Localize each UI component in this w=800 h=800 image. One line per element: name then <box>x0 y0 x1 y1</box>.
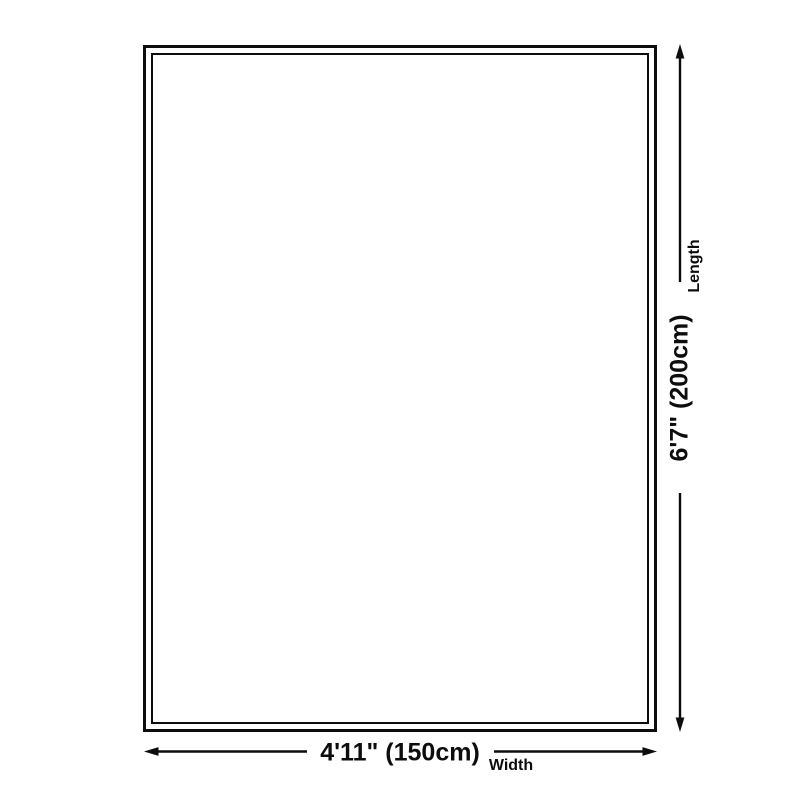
width-value: 4'11" (150cm) <box>320 741 480 766</box>
width-axis-label: Width <box>489 758 533 774</box>
size-diagram: 6'7" (200cm) Length 4'11" (150cm) Width <box>0 0 800 800</box>
width-arrow-head-left <box>144 747 159 756</box>
product-outline-outer <box>143 45 657 732</box>
width-arrow-head-right <box>643 747 658 756</box>
length-value: 6'7" (200cm) <box>668 314 693 461</box>
length-arrow-head-bottom <box>676 718 685 733</box>
length-arrow-head-top <box>676 44 685 59</box>
product-outline-inner <box>151 53 649 724</box>
length-axis-label: Length <box>687 239 703 292</box>
